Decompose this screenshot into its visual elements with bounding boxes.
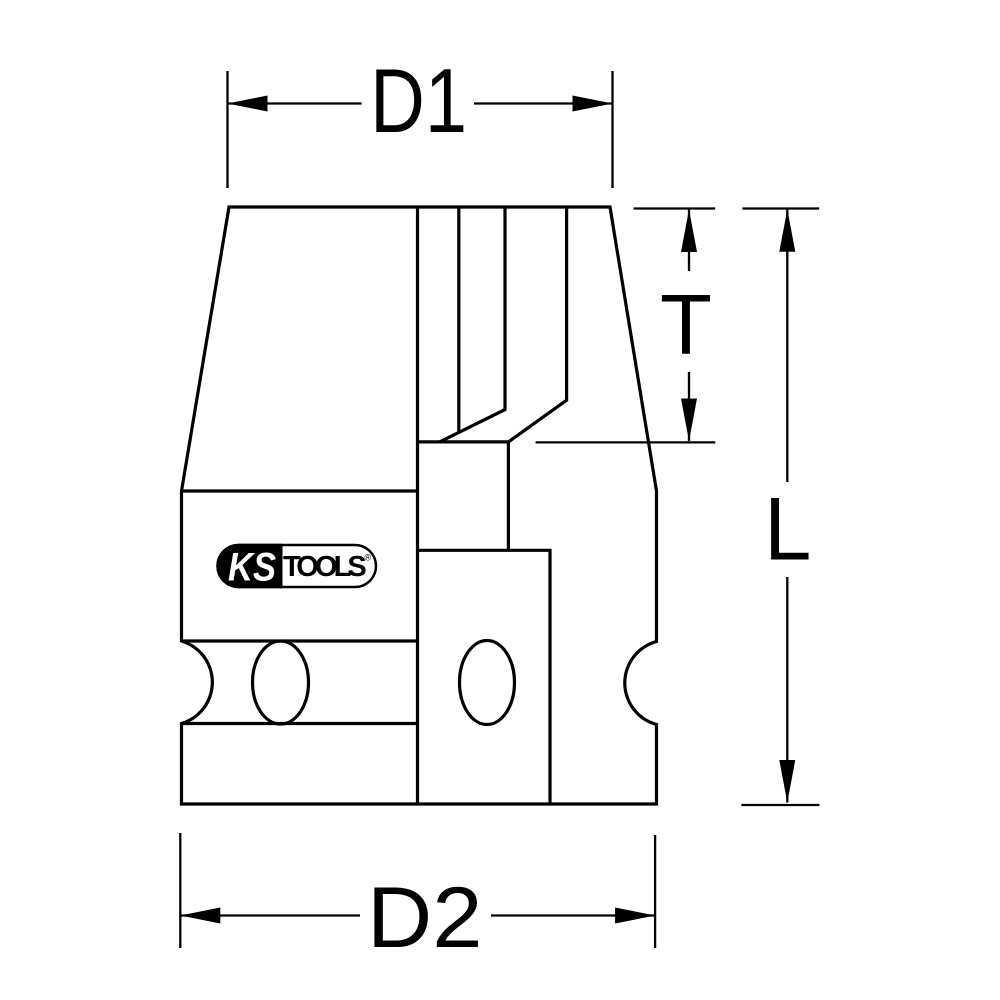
svg-text:L: L [764, 479, 811, 578]
svg-text:TOOLS: TOOLS [283, 551, 366, 583]
svg-text:T: T [660, 278, 712, 373]
svg-text:KS: KS [228, 546, 276, 590]
svg-text:®: ® [365, 553, 372, 563]
svg-text:D1: D1 [370, 49, 467, 151]
svg-text:D2: D2 [367, 868, 482, 965]
